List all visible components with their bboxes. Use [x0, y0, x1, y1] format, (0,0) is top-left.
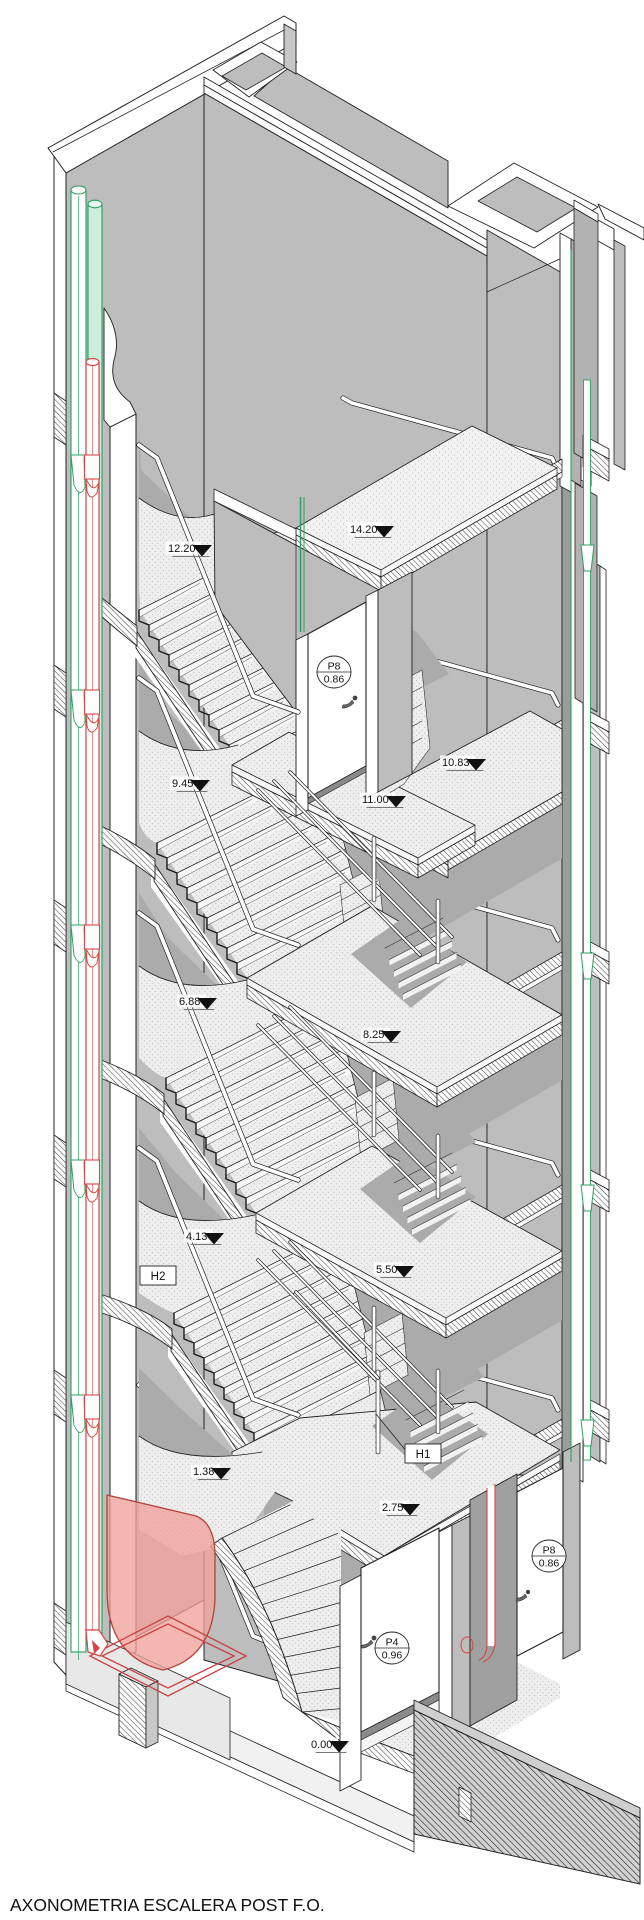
- svg-text:5.50: 5.50: [376, 1264, 397, 1276]
- svg-text:P8: P8: [328, 661, 341, 673]
- svg-text:P8: P8: [543, 1545, 556, 1557]
- svg-text:H2: H2: [151, 1271, 166, 1283]
- svg-text:AXONOMETRIA ESCALERA POST F.O.: AXONOMETRIA ESCALERA POST F.O.: [10, 1895, 325, 1915]
- svg-text:2.75: 2.75: [382, 1502, 403, 1514]
- svg-text:14.20: 14.20: [350, 524, 378, 536]
- svg-text:4.13: 4.13: [186, 1231, 207, 1243]
- svg-text:8.25: 8.25: [363, 1029, 384, 1041]
- svg-text:1.38: 1.38: [193, 1466, 214, 1478]
- svg-text:0.00: 0.00: [311, 1739, 332, 1751]
- svg-text:11.00: 11.00: [362, 794, 389, 806]
- svg-text:0.96: 0.96: [382, 1650, 403, 1662]
- svg-text:9.45: 9.45: [172, 778, 193, 790]
- svg-text:0.86: 0.86: [324, 674, 345, 686]
- svg-text:P4: P4: [386, 1637, 399, 1649]
- svg-text:0.86: 0.86: [539, 1558, 560, 1570]
- svg-text:10.83: 10.83: [442, 757, 470, 769]
- svg-text:12.20: 12.20: [168, 543, 196, 555]
- svg-text:H1: H1: [416, 1449, 431, 1461]
- svg-text:6.88: 6.88: [179, 996, 200, 1008]
